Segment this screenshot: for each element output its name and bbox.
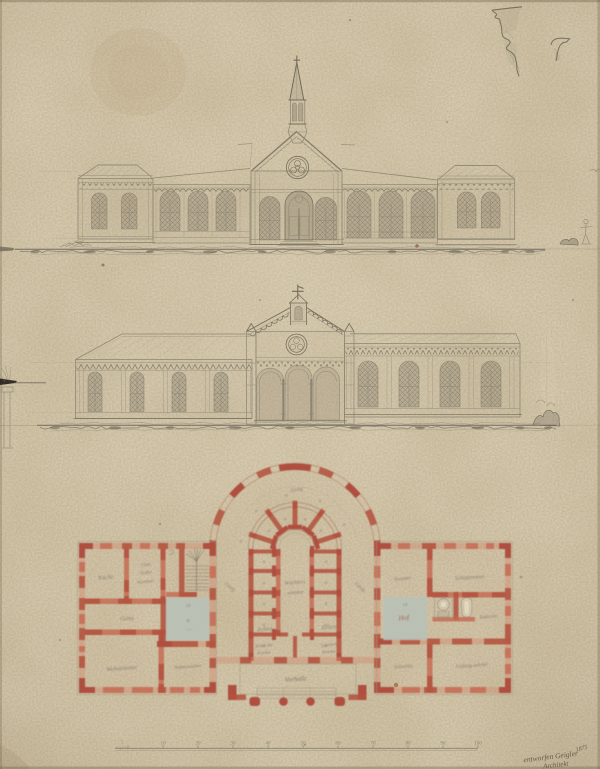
svg-text:14: 14 (186, 603, 191, 608)
svg-text:Hof: Hof (397, 613, 410, 622)
svg-text:20: 20 (196, 742, 202, 747)
svg-text:zimmer: zimmer (287, 589, 305, 596)
svg-text:100: 100 (474, 742, 482, 747)
svg-text:Gang: Gang (120, 615, 134, 622)
svg-text:50: 50 (301, 742, 307, 747)
svg-text:40: 40 (266, 742, 272, 747)
svg-text:60: 60 (336, 742, 342, 747)
svg-text:B: B (186, 619, 189, 624)
svg-text:10: 10 (161, 742, 167, 747)
svg-text:5: 5 (121, 740, 123, 745)
svg-text:30: 30 (231, 742, 237, 747)
svg-text:Gute: Gute (141, 563, 152, 569)
svg-text:90: 90 (441, 742, 447, 747)
svg-text:Stube: Stube (140, 570, 152, 576)
svg-text:∼∼: ∼∼ (186, 627, 193, 632)
svg-text:70: 70 (371, 742, 377, 747)
svg-text:80: 80 (406, 742, 412, 747)
svg-text:14: 14 (403, 602, 408, 607)
